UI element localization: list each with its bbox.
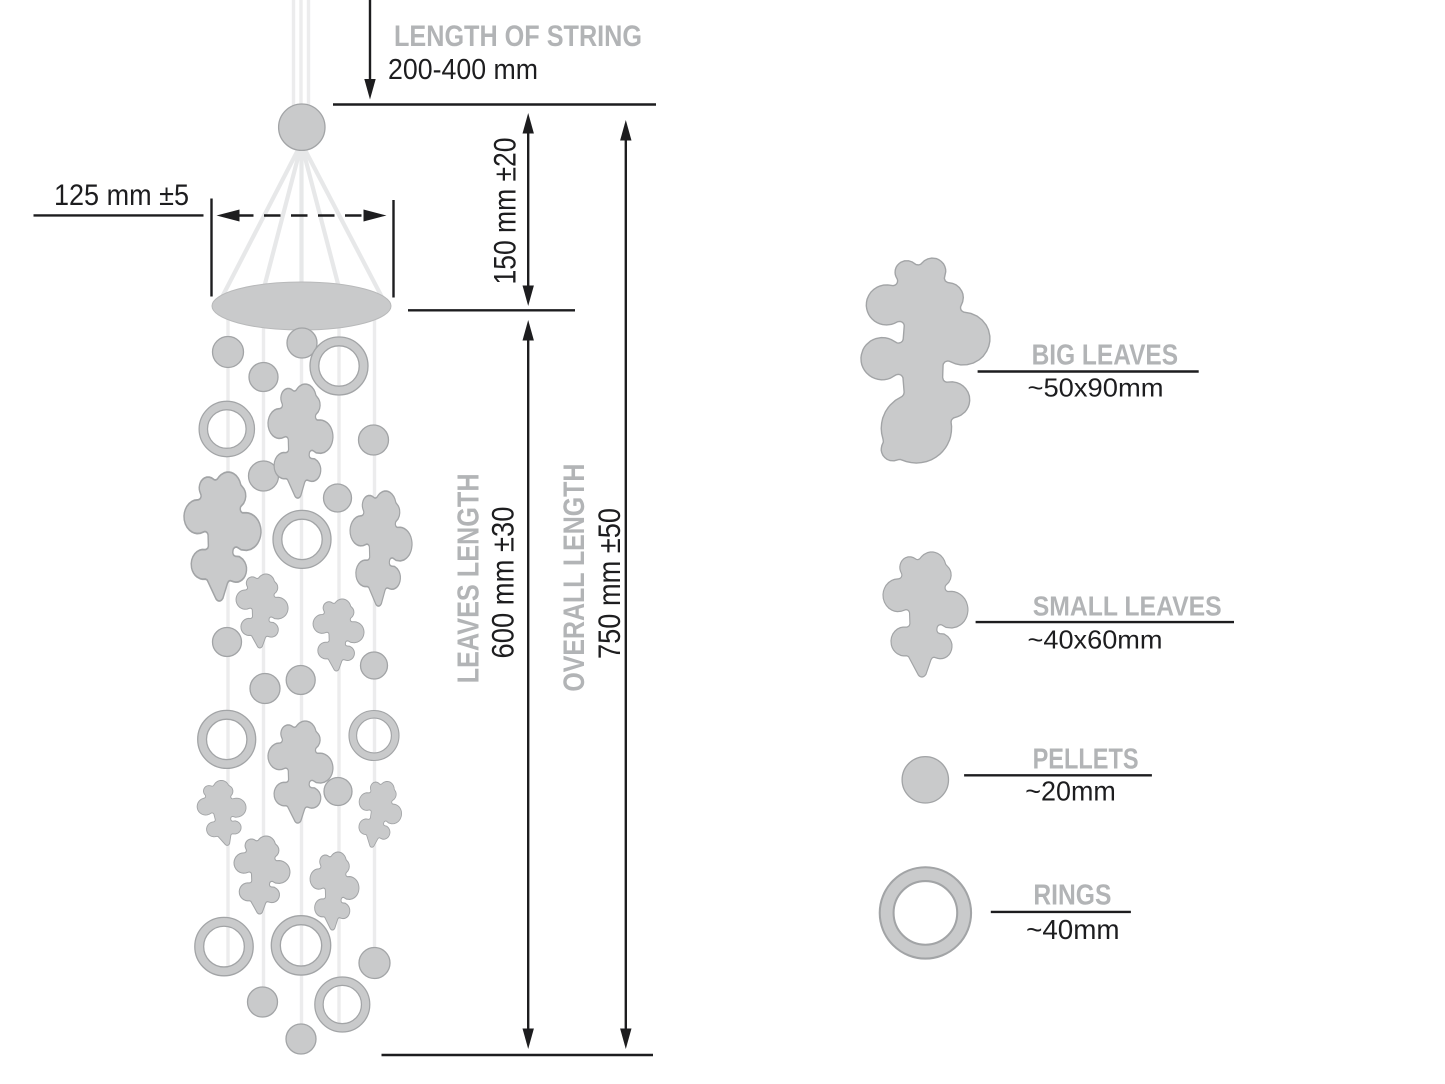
svg-text:RINGS: RINGS	[1033, 880, 1111, 912]
svg-text:LEAVES LENGTH: LEAVES LENGTH	[452, 473, 486, 683]
svg-text:150 mm ±20: 150 mm ±20	[486, 138, 522, 285]
svg-text:PELLETS: PELLETS	[1033, 743, 1139, 775]
svg-text:125 mm ±5: 125 mm ±5	[54, 179, 189, 212]
svg-text:~40x60mm: ~40x60mm	[1028, 625, 1163, 655]
svg-text:~20mm: ~20mm	[1025, 776, 1116, 807]
svg-text:750 mm ±50: 750 mm ±50	[591, 508, 627, 659]
svg-text:200-400 mm: 200-400 mm	[388, 54, 538, 86]
svg-text:600 mm ±30: 600 mm ±30	[485, 507, 521, 659]
svg-text:~40mm: ~40mm	[1026, 914, 1120, 945]
svg-text:OVERALL LENGTH: OVERALL LENGTH	[558, 464, 591, 692]
svg-text:~50x90mm: ~50x90mm	[1028, 372, 1164, 402]
svg-text:SMALL LEAVES: SMALL LEAVES	[1033, 590, 1222, 621]
svg-text:BIG LEAVES: BIG LEAVES	[1032, 339, 1179, 371]
svg-text:LENGTH OF STRING: LENGTH OF STRING	[394, 20, 642, 53]
